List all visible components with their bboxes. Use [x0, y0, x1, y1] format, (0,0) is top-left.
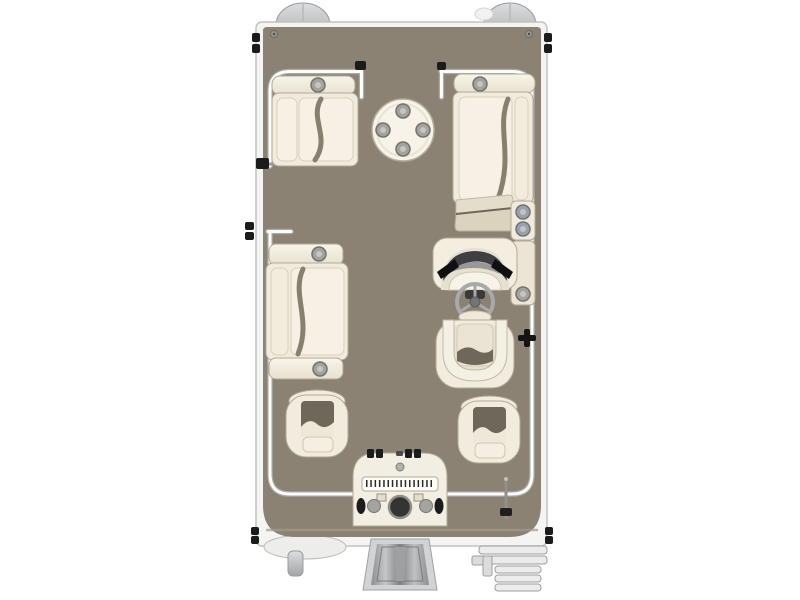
starboard-fishing-chair: [458, 396, 520, 463]
captain-chair: [436, 311, 514, 388]
stern-station: [353, 449, 447, 526]
pontoon-stern-tip: [264, 535, 346, 576]
fish-ruler: [362, 477, 438, 491]
bow-gate-cap: [355, 61, 366, 70]
port-mid-lounge: [266, 244, 348, 379]
livewell-knob: [389, 496, 411, 518]
pontoon-floorplan-illustration: [0, 0, 800, 600]
side-cupholder-panel: [511, 201, 535, 240]
bow-gate-cap: [437, 62, 446, 70]
floorplan-canvas: [0, 0, 800, 600]
stern-light: [475, 8, 493, 20]
bow-table: [372, 99, 434, 161]
bow-port-lounge: [272, 76, 358, 166]
port-fishing-chair: [286, 390, 348, 457]
boarding-ladder: [472, 546, 547, 591]
outboard-motor: [363, 539, 437, 590]
